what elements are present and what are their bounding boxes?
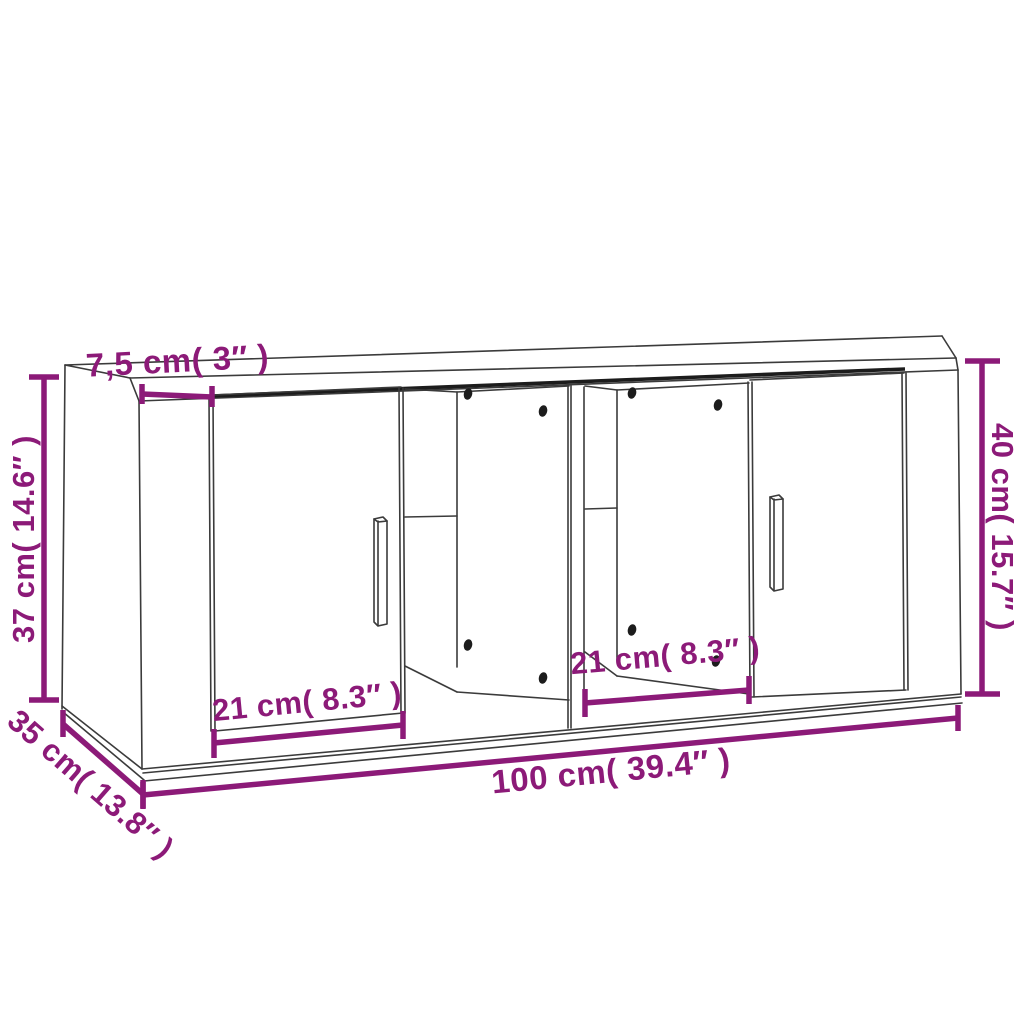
carcass <box>62 365 962 781</box>
dimension-label-top-depth: 7,5 cm( 3″ ) <box>85 337 270 384</box>
dimension-right-height: 40 cm( 15.7″ ) <box>965 361 1020 694</box>
dimension-label-left-height: 37 cm( 14.6″ ) <box>6 435 41 643</box>
right-door-right-edge <box>902 373 904 690</box>
left-handle-outline <box>374 517 387 626</box>
dim-right-opening-line <box>585 690 749 703</box>
right-cubby-shelf-edge <box>585 508 617 509</box>
top-right-thickness-edge <box>956 358 958 370</box>
right-handle-bevel-line <box>770 497 783 590</box>
dimension-label-right-opening-width: 21 cm( 8.3″ ) <box>569 630 762 681</box>
front-left-vertical-edge <box>139 401 142 769</box>
cabinet-diagram-canvas: 7,5 cm( 3″ ) 37 cm( 14.6″ ) 40 cm( 15.7″… <box>0 0 1024 1024</box>
left-door-left-edge <box>213 397 215 731</box>
left-open-compartment <box>405 386 569 700</box>
left-back-vertical-edge <box>62 365 65 709</box>
screw-dot <box>713 398 724 411</box>
top-right-edge <box>942 336 956 358</box>
dimension-right-opening-width: 21 cm( 8.3″ ) <box>569 630 762 717</box>
dimension-label-left-door-width: 21 cm( 8.3″ ) <box>211 675 404 728</box>
screw-dot <box>627 623 638 636</box>
screw-dot <box>538 404 549 417</box>
left-cubby-floor-slant <box>405 666 457 692</box>
dimension-label-right-height: 40 cm( 15.7″ ) <box>985 423 1020 631</box>
dimension-annotations: 7,5 cm( 3″ ) 37 cm( 14.6″ ) 40 cm( 15.7″… <box>1 337 1020 865</box>
left-door-right-gap-line <box>403 388 405 713</box>
left-door-handle <box>374 517 387 626</box>
left-cubby-floor-front-edge <box>457 692 569 700</box>
screw-dot <box>538 671 549 684</box>
dimension-diagram: 7,5 cm( 3″ ) 37 cm( 14.6″ ) 40 cm( 15.7″… <box>0 0 1024 1024</box>
right-door-handle <box>770 495 783 591</box>
left-door-left-gap-line <box>209 397 211 731</box>
right-door <box>748 373 908 697</box>
right-cubby-screw-dots <box>627 386 724 667</box>
right-door-right-gap-line <box>906 373 908 690</box>
right-door-bottom-edge <box>752 690 906 697</box>
cabinet-line-art <box>62 336 962 781</box>
right-handle-outline <box>770 495 783 591</box>
left-cubby-screw-dots <box>463 387 549 684</box>
dimension-depth: 35 cm( 13.8″ ) <box>1 703 181 866</box>
front-right-vertical-edge <box>958 370 961 694</box>
dimension-left-height: 37 cm( 14.6″ ) <box>6 377 59 700</box>
dim-top-depth-line <box>142 394 212 397</box>
left-door-right-edge <box>399 387 401 713</box>
screw-dot <box>463 638 474 651</box>
dimension-label-depth: 35 cm( 13.8″ ) <box>1 703 181 866</box>
left-handle-bevel-line <box>374 519 387 625</box>
left-cubby-shelf-edge <box>405 516 457 517</box>
right-cubby-ceiling-slant <box>585 386 617 390</box>
right-cubby-top-inner-edge <box>617 383 749 390</box>
